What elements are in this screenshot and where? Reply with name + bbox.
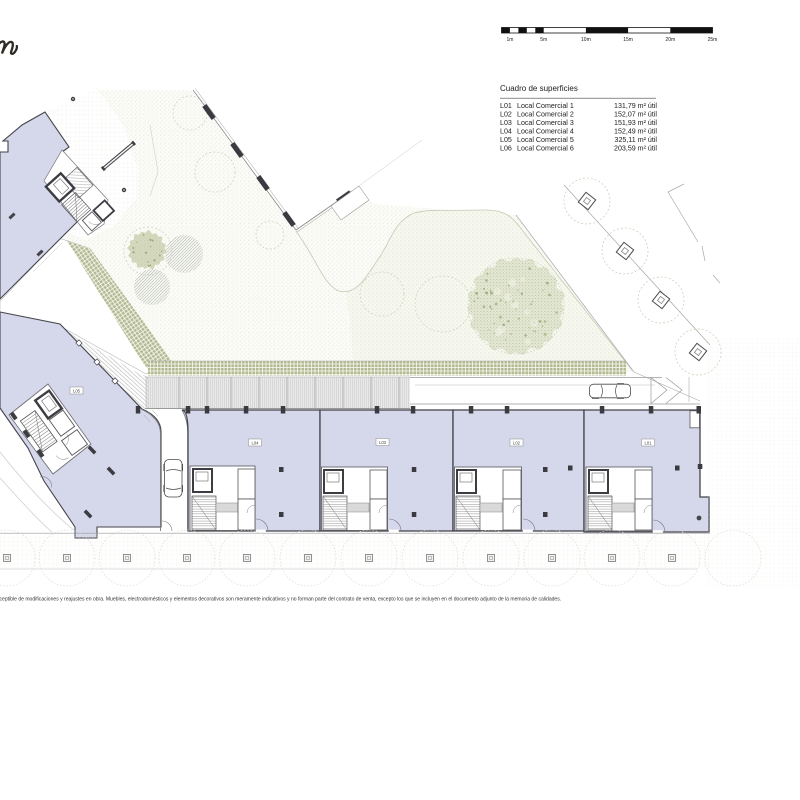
svg-text:131,79 m² útil: 131,79 m² útil xyxy=(614,102,657,110)
svg-text:203,59 m² útil: 203,59 m² útil xyxy=(614,145,657,153)
svg-text:L05: L05 xyxy=(73,388,81,393)
svg-text:151,93 m² útil: 151,93 m² útil xyxy=(614,119,657,127)
svg-text:L04: L04 xyxy=(500,128,512,136)
svg-text:20m: 20m xyxy=(665,37,675,43)
svg-text:Local Comercial 6: Local Comercial 6 xyxy=(517,145,574,153)
svg-text:325,11 m² útil: 325,11 m² útil xyxy=(615,136,658,144)
svg-text:L05: L05 xyxy=(500,136,512,144)
svg-text:L01: L01 xyxy=(500,102,512,110)
svg-text:L03: L03 xyxy=(379,440,387,445)
svg-text:1m: 1m xyxy=(507,37,514,43)
svg-text:Cuadro de superficies: Cuadro de superficies xyxy=(500,84,578,93)
svg-text:Local Comercial 3: Local Comercial 3 xyxy=(517,119,574,127)
svg-text:15m: 15m xyxy=(623,37,633,43)
svg-text:L04: L04 xyxy=(252,440,260,445)
svg-text:Local Comercial 2: Local Comercial 2 xyxy=(517,111,574,119)
svg-text:L01: L01 xyxy=(645,440,653,445)
svg-text:10m: 10m xyxy=(581,37,591,43)
svg-text:L02: L02 xyxy=(500,111,512,119)
svg-text:Local Comercial 1: Local Comercial 1 xyxy=(517,102,574,110)
svg-text:Local Comercial 5: Local Comercial 5 xyxy=(517,136,574,144)
svg-text:sceptible de modificaciones y: sceptible de modificaciones y reajustes … xyxy=(0,597,561,603)
svg-text:L03: L03 xyxy=(500,119,512,127)
svg-text:152,07 m² útil: 152,07 m² útil xyxy=(614,111,657,119)
svg-text:Local Comercial 4: Local Comercial 4 xyxy=(517,128,574,136)
svg-text:25m: 25m xyxy=(708,37,718,43)
svg-text:L02: L02 xyxy=(513,440,521,445)
svg-text:L06: L06 xyxy=(500,145,512,153)
svg-text:5m: 5m xyxy=(540,37,547,43)
svg-text:152,49 m² útil: 152,49 m² útil xyxy=(614,128,657,136)
